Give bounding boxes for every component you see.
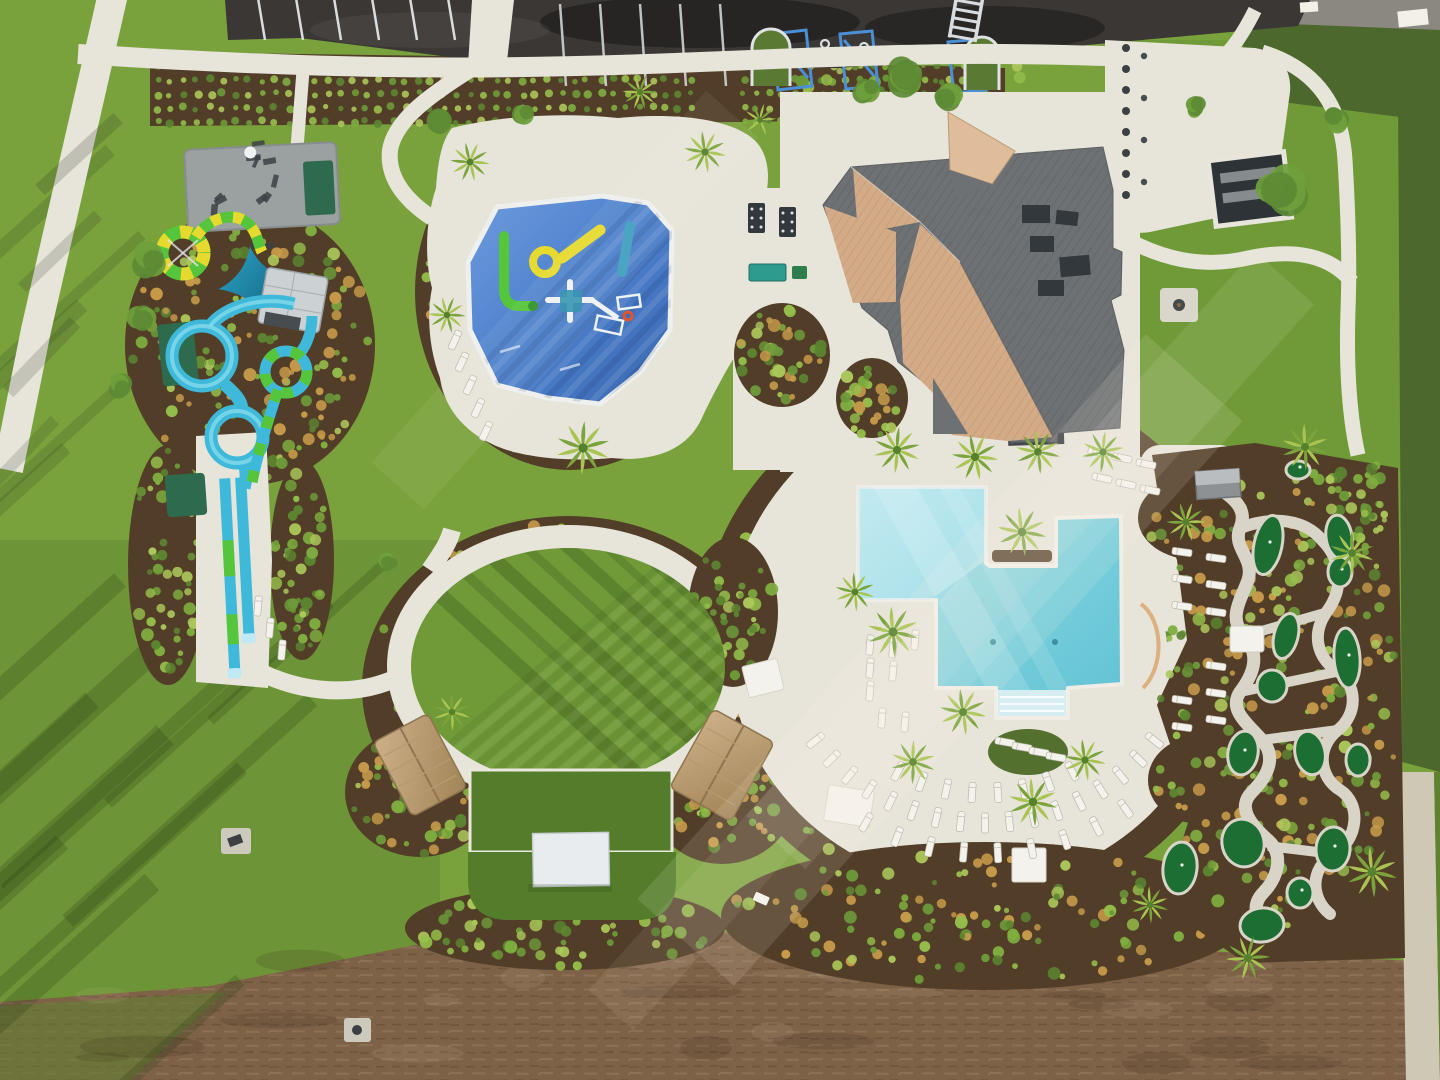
- shrub: [915, 975, 924, 984]
- hedge-shrub: [610, 74, 618, 82]
- dirt-mottle: [76, 987, 130, 1003]
- shrub: [1320, 702, 1327, 709]
- road-sidewalk-pad: [1397, 8, 1429, 27]
- shrub: [986, 866, 997, 877]
- shrub: [891, 406, 900, 415]
- shrub: [1053, 894, 1060, 901]
- shrub: [994, 905, 1001, 912]
- shrub: [1385, 636, 1393, 644]
- shrub: [363, 816, 371, 824]
- shrub: [1169, 789, 1178, 798]
- shrub: [1295, 869, 1300, 874]
- shrub: [855, 885, 867, 897]
- shrub: [1193, 662, 1200, 669]
- hedge-shrub: [546, 105, 552, 111]
- hedge-shrub: [363, 92, 370, 99]
- shrub: [167, 610, 175, 618]
- shrub: [420, 849, 429, 858]
- shrub: [287, 580, 294, 587]
- hedge-shrub: [584, 106, 590, 112]
- hedge-shrub: [521, 92, 528, 99]
- hedge-shrub: [156, 77, 162, 83]
- shrub: [1378, 584, 1391, 597]
- shrub: [851, 425, 858, 432]
- hedge-shrub: [326, 91, 332, 97]
- shrub: [288, 450, 297, 459]
- shrub: [318, 415, 324, 421]
- shrub: [821, 74, 832, 85]
- shrub: [379, 624, 388, 633]
- dirt-mottle: [256, 950, 345, 972]
- lounge-chair: [968, 782, 976, 802]
- hedge-shrub: [560, 90, 566, 96]
- shrub: [559, 946, 570, 957]
- shrub: [867, 937, 875, 945]
- shrub: [150, 288, 163, 301]
- dirt-mottle: [1122, 1052, 1190, 1075]
- shrub: [358, 762, 369, 773]
- shrub: [336, 267, 342, 273]
- hedge-shrub: [361, 105, 367, 111]
- shrub: [315, 590, 325, 600]
- shrub: [1215, 528, 1226, 539]
- hedge-shrub: [374, 120, 382, 128]
- shrub: [1211, 617, 1223, 629]
- shrub: [154, 307, 160, 313]
- shrub: [736, 365, 747, 376]
- shrub: [342, 357, 348, 363]
- hedge-shrub: [493, 104, 499, 110]
- hedge-shrub: [662, 92, 669, 99]
- hedge-shrub: [217, 88, 225, 96]
- shrub: [857, 429, 866, 438]
- shrub: [739, 583, 746, 590]
- shrub: [300, 611, 307, 618]
- shrub: [278, 622, 287, 631]
- shrub: [175, 658, 182, 665]
- hedge-shrub: [401, 78, 408, 85]
- hedge-shrub: [218, 106, 224, 112]
- shrub: [1177, 564, 1184, 571]
- shrub: [268, 255, 279, 266]
- shrub: [1113, 858, 1122, 867]
- shrub: [846, 895, 856, 905]
- hedge-shrub: [258, 116, 266, 124]
- hedge-shrub: [352, 89, 359, 96]
- hedge-shrub: [572, 79, 578, 85]
- lounge-chair: [254, 596, 263, 617]
- shrub: [278, 248, 289, 259]
- plaza-table: [1122, 170, 1130, 178]
- shrub: [1362, 583, 1372, 593]
- shrub: [517, 948, 526, 957]
- shrub: [310, 493, 318, 501]
- hedge-shrub: [192, 77, 198, 83]
- shrub: [789, 394, 795, 400]
- hedge-shrub: [688, 90, 693, 95]
- shrub: [726, 626, 739, 639]
- hedge-shrub: [325, 76, 332, 83]
- shrub: [1201, 531, 1212, 542]
- shrub: [182, 571, 193, 582]
- shrub: [1295, 539, 1302, 546]
- shrub: [705, 603, 710, 608]
- shrub: [1091, 960, 1097, 966]
- shrub: [1145, 958, 1152, 965]
- shrub: [277, 570, 285, 578]
- hedge-shrub: [181, 120, 187, 126]
- golf-hole: [1347, 653, 1350, 656]
- shrub: [494, 950, 504, 960]
- shrub: [1098, 966, 1107, 975]
- hedge-shrub: [558, 78, 564, 84]
- shrub: [305, 225, 316, 236]
- shrub: [178, 650, 184, 656]
- shrub: [146, 617, 155, 626]
- golf-green: [1328, 557, 1352, 587]
- shrub: [385, 814, 390, 819]
- shrub: [156, 604, 165, 613]
- shrub: [244, 368, 257, 381]
- shrub: [1219, 591, 1227, 599]
- shrub: [290, 468, 302, 480]
- shrub: [231, 248, 242, 259]
- shrub: [332, 368, 342, 378]
- hedge-shrub: [530, 90, 538, 98]
- shrub: [340, 376, 346, 382]
- hedge-shrub: [260, 90, 266, 96]
- shrub: [404, 841, 409, 846]
- shrub: [163, 308, 170, 315]
- shrub: [1363, 611, 1371, 619]
- shrub: [1285, 574, 1298, 587]
- plaza-table: [1122, 107, 1130, 115]
- shrub: [221, 264, 229, 272]
- shrub: [298, 634, 308, 644]
- shrub: [445, 820, 456, 831]
- shrub: [1310, 501, 1315, 506]
- shrub: [258, 333, 268, 343]
- hedge-right-edge: [1398, 95, 1440, 772]
- plaza-table: [1122, 44, 1130, 52]
- shrub: [361, 780, 370, 789]
- shrub: [1378, 708, 1390, 720]
- hedge-shrub: [337, 90, 344, 97]
- shrub: [1335, 486, 1342, 493]
- hedge-shrub: [348, 77, 355, 84]
- lounge-chair: [959, 842, 968, 863]
- tree-canopy: [427, 108, 452, 133]
- shrub: [175, 463, 180, 468]
- shrub: [676, 821, 688, 833]
- shrub: [961, 869, 968, 876]
- shrub: [1117, 955, 1124, 962]
- shrub: [1168, 782, 1176, 790]
- shrub: [146, 588, 156, 598]
- hedge-shrub: [231, 117, 239, 125]
- hedge-shrub: [206, 118, 213, 125]
- plaza-table: [1122, 149, 1130, 157]
- shrub: [1176, 803, 1182, 809]
- shrub: [1164, 539, 1169, 544]
- shrub: [301, 597, 313, 609]
- hedge-shrub: [154, 106, 162, 114]
- tree-canopy: [1325, 107, 1343, 125]
- hedge-shrub: [572, 90, 580, 98]
- shrub: [1204, 756, 1216, 768]
- shrub: [883, 406, 891, 414]
- fire-pit-center: [1177, 303, 1181, 307]
- shrub: [703, 557, 709, 563]
- hedge-shrub: [740, 91, 745, 96]
- shrub: [556, 961, 566, 971]
- shrub: [959, 933, 965, 939]
- shrub: [734, 649, 745, 660]
- hedge-shrub: [453, 120, 459, 126]
- shrub: [292, 540, 297, 545]
- plaza-table: [1122, 128, 1130, 136]
- shrub: [612, 931, 618, 937]
- hedge-shrub: [194, 119, 200, 125]
- shrub: [151, 457, 163, 469]
- fitness-connector-path: [297, 58, 304, 148]
- shrub: [481, 918, 492, 929]
- shrub: [1356, 489, 1366, 499]
- hedge-shrub: [166, 93, 171, 98]
- plaza-table: [1122, 191, 1130, 199]
- shrub: [1277, 896, 1283, 902]
- shrub: [840, 392, 851, 403]
- hedge-shrub: [361, 117, 368, 124]
- shrub: [319, 434, 325, 440]
- shrub: [155, 480, 160, 485]
- shrub: [1060, 860, 1070, 870]
- shrub: [1078, 908, 1085, 915]
- shrub: [1368, 723, 1375, 730]
- shrub: [1372, 772, 1381, 781]
- shrub: [992, 882, 997, 887]
- golf-shed: [1195, 468, 1241, 499]
- tree-canopy: [935, 89, 955, 109]
- shrub: [184, 588, 191, 595]
- shrub: [850, 413, 860, 423]
- shrub: [881, 940, 886, 945]
- tree-canopy: [114, 380, 130, 396]
- golf-hole: [1298, 465, 1301, 468]
- shrub: [1180, 710, 1191, 721]
- shrub: [937, 899, 946, 908]
- shrub: [899, 901, 908, 910]
- shrub: [288, 511, 298, 521]
- asphalt-wear: [310, 12, 550, 48]
- shrub: [751, 328, 762, 339]
- hedge-shrub: [232, 92, 239, 99]
- shrub: [1182, 804, 1188, 810]
- hedge-shrub: [415, 119, 423, 127]
- golf-hole: [1243, 748, 1246, 751]
- shrub: [1223, 725, 1234, 736]
- shrub: [191, 290, 197, 296]
- shrub: [215, 402, 221, 408]
- hedge-shrub: [402, 91, 409, 98]
- shrub: [208, 359, 215, 366]
- shade-canopy: [303, 160, 336, 215]
- shrub: [391, 800, 404, 813]
- shrub: [579, 951, 587, 959]
- hedge-shrub: [660, 75, 667, 82]
- shrub: [955, 916, 968, 929]
- shrub: [332, 310, 342, 320]
- shrub: [351, 806, 357, 812]
- shrub: [296, 445, 301, 450]
- shrub: [341, 420, 350, 429]
- movie-screen: [533, 832, 610, 886]
- shrub: [901, 894, 908, 901]
- shrub: [1328, 486, 1336, 494]
- hedge-shrub: [674, 78, 680, 84]
- shrub: [711, 561, 720, 570]
- shrub: [1120, 890, 1129, 899]
- shrub: [1282, 749, 1292, 759]
- dirt-mottle: [1240, 1055, 1343, 1071]
- golf-green: [1315, 826, 1352, 872]
- shrub: [1293, 488, 1301, 496]
- hedge-shrub: [415, 77, 423, 85]
- shrub: [1222, 812, 1231, 821]
- shrub: [328, 434, 335, 441]
- shrub: [751, 617, 756, 622]
- shrub: [174, 636, 181, 643]
- shrub: [817, 358, 823, 364]
- shrub: [1275, 794, 1286, 805]
- tree-canopy: [1261, 172, 1297, 208]
- hedge-shrub: [742, 104, 749, 111]
- shrub: [766, 317, 772, 323]
- shrub: [1325, 475, 1334, 484]
- shrub: [1167, 636, 1173, 642]
- shrub: [841, 371, 853, 383]
- shrub: [1380, 791, 1389, 800]
- hedge-shrub: [674, 91, 681, 98]
- shrub: [1299, 797, 1308, 806]
- shrub: [1371, 640, 1380, 649]
- game-table-teal: [749, 264, 786, 281]
- shrub: [161, 469, 169, 477]
- hedge-shrub: [688, 77, 695, 84]
- right-road: [1400, 772, 1440, 1080]
- shrub: [1048, 967, 1061, 980]
- shrub: [1176, 631, 1185, 640]
- hedge-shrub: [519, 78, 527, 86]
- dirt-mottle: [501, 967, 546, 989]
- shrub: [188, 553, 196, 561]
- hedge-shrub: [387, 102, 395, 110]
- shrub: [737, 339, 745, 347]
- hedge-shrub: [167, 79, 172, 84]
- shrub: [186, 401, 191, 406]
- shrub: [229, 234, 237, 242]
- hedge-shrub: [478, 103, 485, 110]
- dirt-mottle: [372, 1044, 463, 1063]
- hedge-shrub: [622, 75, 630, 83]
- shrub: [1307, 558, 1314, 565]
- shrub: [1215, 699, 1228, 712]
- shrub: [247, 333, 252, 338]
- hedge-shrub: [179, 103, 187, 111]
- shrub: [874, 412, 882, 420]
- shrub: [349, 374, 356, 381]
- shrub: [438, 914, 448, 924]
- shrub: [335, 428, 342, 435]
- shrub: [1367, 696, 1372, 701]
- shrub: [1004, 908, 1009, 913]
- shrub: [447, 948, 454, 955]
- shrub: [334, 394, 341, 401]
- shrub: [1136, 945, 1146, 955]
- shrub: [749, 625, 757, 633]
- shrub: [1211, 894, 1224, 907]
- shrub: [1273, 604, 1285, 616]
- hedge-shrub: [208, 91, 216, 99]
- hedge-shrub: [466, 105, 472, 111]
- shade-canopy: [165, 473, 208, 518]
- hedge-shrub: [469, 92, 474, 97]
- shrub: [1153, 786, 1160, 793]
- shrub: [1354, 846, 1362, 854]
- shrub: [165, 663, 176, 674]
- hedge-shrub: [374, 105, 382, 113]
- shrub: [1374, 564, 1380, 570]
- hedge-shrub: [156, 118, 162, 124]
- hedge-shrub: [650, 103, 658, 111]
- shrub: [1034, 924, 1041, 931]
- shrub: [1246, 700, 1257, 711]
- shrub: [1012, 963, 1018, 969]
- hedge-shrub: [307, 105, 315, 113]
- shrub: [1200, 624, 1209, 633]
- shrub: [1374, 740, 1384, 750]
- shrub: [343, 276, 355, 288]
- shrub: [773, 365, 786, 378]
- hedge-shrub: [611, 105, 617, 111]
- shrub: [282, 378, 288, 384]
- shrub: [301, 395, 312, 406]
- shrub: [796, 361, 803, 368]
- shrub: [1190, 830, 1202, 842]
- shrub: [429, 844, 439, 854]
- shrub: [888, 956, 895, 963]
- hedge-shrub: [453, 92, 459, 98]
- hedge-shrub: [155, 92, 163, 100]
- shrub: [273, 540, 279, 546]
- shrub: [166, 405, 178, 417]
- golf-hut: [1230, 626, 1264, 652]
- shrub: [982, 919, 991, 928]
- hedge-shrub: [336, 78, 344, 86]
- hedge-shrub: [269, 103, 276, 110]
- shrub: [1326, 694, 1335, 703]
- shrub: [877, 431, 883, 437]
- hedge-shrub: [559, 104, 567, 112]
- road-marking: [1300, 1, 1319, 12]
- shrub: [316, 387, 324, 395]
- shrub: [319, 360, 328, 369]
- hedge-shrub: [351, 119, 359, 127]
- shrub: [285, 480, 297, 492]
- shrub: [1366, 463, 1378, 475]
- hedge-shrub: [206, 74, 214, 82]
- hedge-shrub: [506, 106, 511, 111]
